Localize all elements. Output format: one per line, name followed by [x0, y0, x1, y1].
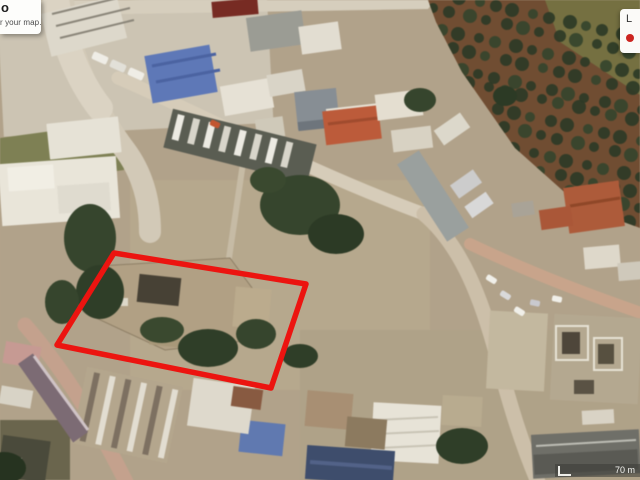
red-dot-icon — [626, 34, 634, 42]
scale-distance-label: 70 m — [615, 465, 635, 475]
tooltip-text-line1: o — [1, 1, 41, 15]
map-tooltip: o r your map. — [0, 0, 41, 34]
aerial-photo-layer — [0, 0, 640, 480]
legend-panel[interactable]: L — [620, 9, 640, 53]
satellite-imagery[interactable] — [0, 0, 640, 480]
scale-bracket-icon — [558, 466, 571, 476]
scale-bar: 70 m — [555, 464, 640, 477]
map-viewport[interactable]: o r your map. L 70 m — [0, 0, 640, 480]
legend-label: L — [626, 14, 640, 25]
tooltip-text-line2: r your map. — [0, 18, 41, 27]
